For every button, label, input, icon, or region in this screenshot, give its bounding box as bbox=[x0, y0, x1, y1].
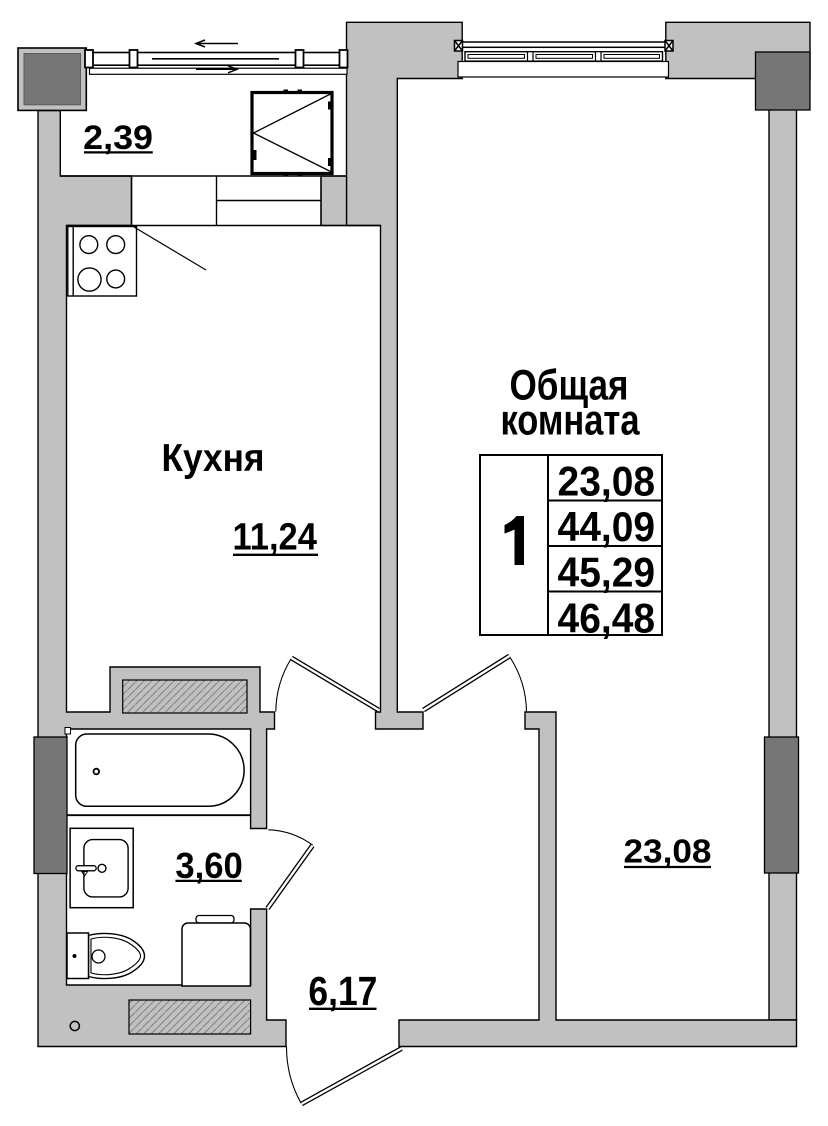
svg-text:Кухня: Кухня bbox=[162, 437, 265, 480]
svg-text:комната: комната bbox=[501, 397, 640, 444]
svg-text:2,39: 2,39 bbox=[83, 119, 153, 157]
svg-text:45,29: 45,29 bbox=[558, 549, 656, 596]
svg-text:23,08: 23,08 bbox=[558, 458, 656, 505]
svg-text:11,24: 11,24 bbox=[233, 516, 317, 558]
svg-text:6,17: 6,17 bbox=[308, 968, 377, 1014]
svg-text:23,08: 23,08 bbox=[624, 832, 712, 869]
svg-text:46,48: 46,48 bbox=[558, 595, 656, 642]
svg-text:44,09: 44,09 bbox=[558, 503, 656, 550]
